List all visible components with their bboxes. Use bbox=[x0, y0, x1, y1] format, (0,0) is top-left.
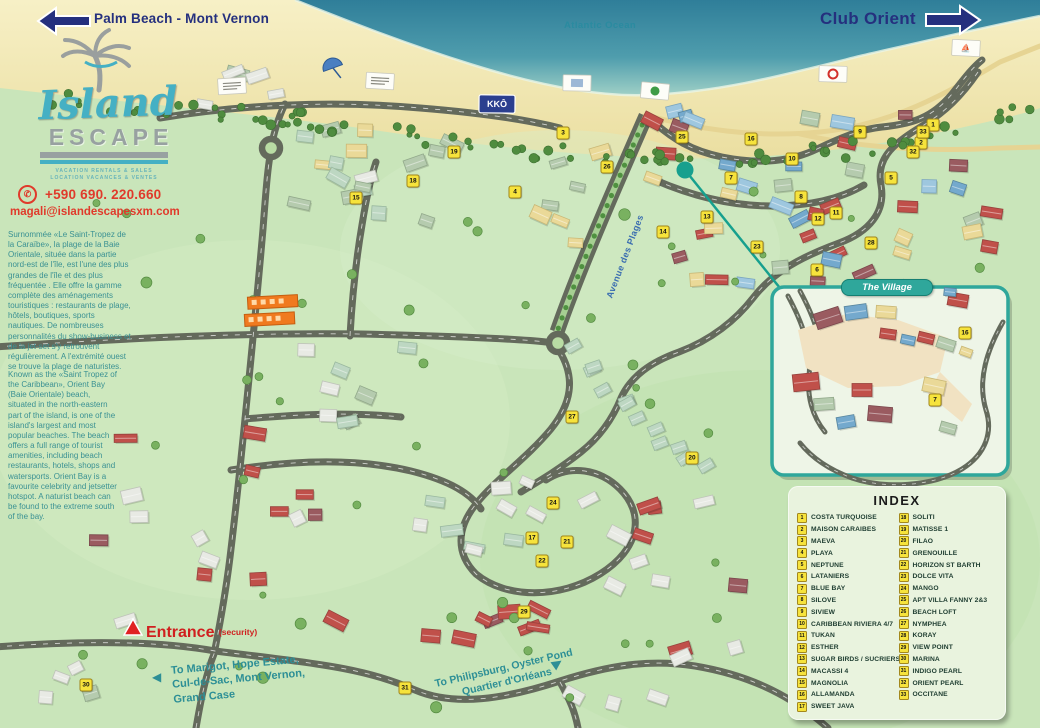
index-label: CARIBBEAN RIVIERA 4/7 bbox=[811, 621, 893, 628]
index-entry: 9SIVIEW bbox=[797, 606, 899, 618]
map-marker-27: 27 bbox=[566, 411, 579, 424]
index-label: INDIGO PEARL bbox=[913, 668, 963, 675]
index-number: 32 bbox=[899, 678, 909, 688]
index-entry: 11TUKAN bbox=[797, 630, 899, 642]
index-label: FILAO bbox=[913, 538, 934, 545]
index-number: 24 bbox=[899, 584, 909, 594]
map-marker-13: 13 bbox=[701, 211, 714, 224]
map-marker-6: 6 bbox=[811, 264, 824, 277]
index-entry: 33OCCITANE bbox=[899, 689, 1001, 701]
beach-sign-tree bbox=[640, 82, 669, 100]
index-number: 30 bbox=[899, 654, 909, 664]
index-entry: 21GRENOUILLE bbox=[899, 547, 1001, 559]
index-label: MAISON CARAIBES bbox=[811, 526, 876, 533]
index-entry: 10CARIBBEAN RIVIERA 4/7 bbox=[797, 618, 899, 630]
index-label: COSTA TURQUOISE bbox=[811, 514, 877, 521]
map-marker-32: 32 bbox=[907, 146, 920, 159]
roundabout-north bbox=[262, 139, 280, 157]
index-number: 8 bbox=[797, 595, 807, 605]
index-entry: 4PLAYA bbox=[797, 547, 899, 559]
index-entry: 18SOLITI bbox=[899, 512, 1001, 524]
logo-bar-gray bbox=[40, 152, 168, 158]
svg-text:⛵: ⛵ bbox=[961, 43, 971, 53]
index-entry: 23DOLCE VITA bbox=[899, 571, 1001, 583]
index-column-2: 18SOLITI19MATISSE 120FILAO21GRENOUILLE22… bbox=[899, 512, 1001, 713]
index-label: APT VILLA FANNY 2&3 bbox=[913, 597, 988, 604]
index-number: 12 bbox=[797, 643, 807, 653]
map-marker-4: 4 bbox=[509, 186, 522, 199]
index-label: SUGAR BIRDS / SUCRIERS bbox=[811, 656, 900, 663]
map-marker-29: 29 bbox=[518, 606, 531, 619]
map-marker-28: 28 bbox=[865, 237, 878, 250]
entrance-marker-icon bbox=[123, 618, 143, 636]
index-label: MANGO bbox=[913, 585, 939, 592]
index-columns: 1COSTA TURQUOISE2MAISON CARAIBES3MAEVA4P… bbox=[788, 512, 1006, 713]
resort-map: KKÔ⛵ Palm Beach - Mont Vernon Club Orien… bbox=[0, 0, 1040, 728]
beach-sign-menu bbox=[218, 77, 247, 95]
index-entry: 7BLUE BAY bbox=[797, 583, 899, 595]
phone-row: ✆ +590 690. 220.660 bbox=[18, 185, 161, 204]
index-entry: 32ORIENT PEARL bbox=[899, 677, 1001, 689]
intro-paragraph-english: Known as the «Saint Tropez of the Caribb… bbox=[8, 370, 120, 522]
index-label: SOLITI bbox=[913, 514, 935, 521]
index-label: MACASSI 4 bbox=[811, 668, 848, 675]
ocean-label: Atlantic Ocean bbox=[564, 20, 636, 31]
index-number: 22 bbox=[899, 560, 909, 570]
map-marker-10: 10 bbox=[786, 153, 799, 166]
map-marker-20: 20 bbox=[686, 452, 699, 465]
map-marker-7: 7 bbox=[929, 394, 942, 407]
index-number: 5 bbox=[797, 560, 807, 570]
intro-paragraph-french: Surnommée «Le Saint-Tropez de la Caraïbe… bbox=[8, 230, 132, 372]
index-number: 13 bbox=[797, 654, 807, 664]
map-marker-26: 26 bbox=[601, 161, 614, 174]
index-label: NYMPHEA bbox=[913, 621, 947, 628]
index-label: ORIENT PEARL bbox=[913, 680, 964, 687]
map-marker-21: 21 bbox=[561, 536, 574, 549]
map-marker-3: 3 bbox=[557, 127, 570, 140]
index-number: 16 bbox=[797, 690, 807, 700]
index-number: 3 bbox=[797, 536, 807, 546]
index-label: OCCITANE bbox=[913, 691, 948, 698]
index-entry: 24MANGO bbox=[899, 583, 1001, 595]
logo-bar-teal bbox=[40, 160, 168, 164]
index-number: 15 bbox=[797, 678, 807, 688]
map-marker-16: 16 bbox=[959, 327, 972, 340]
index-number: 29 bbox=[899, 643, 909, 653]
village-title: The Village bbox=[841, 279, 933, 296]
index-label: DOLCE VITA bbox=[913, 573, 954, 580]
marigot-arrow-icon: ◀ bbox=[152, 670, 161, 684]
index-entry: 28KORAY bbox=[899, 630, 1001, 642]
index-number: 9 bbox=[797, 607, 807, 617]
index-number: 14 bbox=[797, 666, 807, 676]
index-label: VIEW POINT bbox=[913, 644, 953, 651]
phone-icon: ✆ bbox=[18, 185, 37, 204]
email-address: magali@islandescapesxm.com bbox=[10, 206, 180, 218]
village-location-dot bbox=[677, 162, 694, 179]
index-label: SILOVE bbox=[811, 597, 836, 604]
brand-tagline-fr: LOCATION VACANCES & VENTES bbox=[38, 175, 170, 181]
beach-sign-red-1: ⛵ bbox=[952, 39, 981, 56]
entrance-label: Entrance (security) bbox=[146, 624, 257, 642]
index-entry: 25APT VILLA FANNY 2&3 bbox=[899, 595, 1001, 607]
brand-tagline-en: VACATION RENTALS & SALES bbox=[38, 168, 170, 174]
index-label: SWEET JAVA bbox=[811, 703, 854, 710]
index-label: BLUE BAY bbox=[811, 585, 845, 592]
index-entry: 29VIEW POINT bbox=[899, 642, 1001, 654]
index-label: MARINA bbox=[913, 656, 940, 663]
destination-club-orient: Club Orient bbox=[820, 9, 916, 29]
index-label: MAEVA bbox=[811, 538, 835, 545]
destination-palm-beach: Palm Beach - Mont Vernon bbox=[94, 11, 269, 26]
index-label: ALLAMANDA bbox=[811, 691, 855, 698]
index-label: KORAY bbox=[913, 632, 937, 639]
index-label: BEACH LOFT bbox=[913, 609, 957, 616]
map-marker-17: 17 bbox=[526, 532, 539, 545]
map-marker-12: 12 bbox=[812, 213, 825, 226]
index-number: 6 bbox=[797, 572, 807, 582]
index-entry: 8SILOVE bbox=[797, 595, 899, 607]
right-arrow-icon bbox=[924, 4, 982, 36]
index-number: 4 bbox=[797, 548, 807, 558]
entrance-security-note: (security) bbox=[219, 627, 257, 637]
index-label: NEPTUNE bbox=[811, 562, 844, 569]
beach-sign-menu bbox=[366, 72, 395, 90]
index-entry: 14MACASSI 4 bbox=[797, 665, 899, 677]
index-number: 28 bbox=[899, 631, 909, 641]
brand-name-caps: ESCAPE bbox=[36, 124, 186, 151]
map-marker-24: 24 bbox=[547, 497, 560, 510]
index-entry: 30MARINA bbox=[899, 654, 1001, 666]
index-entry: 22HORIZON ST BARTH bbox=[899, 559, 1001, 571]
beach-sign-red-dot bbox=[819, 66, 847, 83]
svg-text:KKÔ: KKÔ bbox=[487, 98, 507, 109]
index-entry: 12ESTHER bbox=[797, 642, 899, 654]
index-entry: 3MAEVA bbox=[797, 536, 899, 548]
index-number: 18 bbox=[899, 513, 909, 523]
index-label: GRENOUILLE bbox=[913, 550, 958, 557]
index-number: 17 bbox=[797, 702, 807, 712]
index-label: LATANIERS bbox=[811, 573, 849, 580]
beach-sign-plain bbox=[563, 75, 591, 92]
index-entry: 1COSTA TURQUOISE bbox=[797, 512, 899, 524]
map-marker-19: 19 bbox=[448, 146, 461, 159]
index-entry: 2MAISON CARAIBES bbox=[797, 524, 899, 536]
map-marker-7: 7 bbox=[725, 172, 738, 185]
index-entry: 20FILAO bbox=[899, 536, 1001, 548]
index-number: 11 bbox=[797, 631, 807, 641]
index-entry: 27NYMPHEA bbox=[899, 618, 1001, 630]
index-entry: 15MAGNOLIA bbox=[797, 677, 899, 689]
index-label: MAGNOLIA bbox=[811, 680, 848, 687]
index-panel: INDEX 1COSTA TURQUOISE2MAISON CARAIBES3M… bbox=[788, 486, 1006, 720]
index-number: 25 bbox=[899, 595, 909, 605]
index-entry: 13SUGAR BIRDS / SUCRIERS bbox=[797, 654, 899, 666]
index-label: ESTHER bbox=[811, 644, 839, 651]
brand-name-script: Island bbox=[27, 77, 189, 130]
index-number: 19 bbox=[899, 525, 909, 535]
map-marker-15: 15 bbox=[350, 192, 363, 205]
index-number: 7 bbox=[797, 584, 807, 594]
index-entry: 26BEACH LOFT bbox=[899, 606, 1001, 618]
index-number: 2 bbox=[797, 525, 807, 535]
index-label: HORIZON ST BARTH bbox=[913, 562, 981, 569]
index-number: 1 bbox=[797, 513, 807, 523]
village-inset bbox=[772, 287, 1012, 485]
phone-number: +590 690. 220.660 bbox=[45, 187, 161, 202]
map-marker-16: 16 bbox=[745, 133, 758, 146]
index-number: 21 bbox=[899, 548, 909, 558]
map-marker-9: 9 bbox=[854, 126, 867, 139]
index-entry: 19MATISSE 1 bbox=[899, 524, 1001, 536]
beach-sign-kko: KKÔ bbox=[479, 95, 515, 113]
index-entry: 6LATANIERS bbox=[797, 571, 899, 583]
map-marker-30: 30 bbox=[80, 679, 93, 692]
index-number: 10 bbox=[797, 619, 807, 629]
roundabout-south bbox=[549, 334, 567, 352]
entrance-text: Entrance bbox=[146, 624, 214, 641]
index-label: MATISSE 1 bbox=[913, 526, 949, 533]
index-number: 27 bbox=[899, 619, 909, 629]
index-number: 23 bbox=[899, 572, 909, 582]
map-marker-31: 31 bbox=[399, 682, 412, 695]
map-marker-33: 33 bbox=[917, 126, 930, 139]
index-column-1: 1COSTA TURQUOISE2MAISON CARAIBES3MAEVA4P… bbox=[797, 512, 899, 713]
index-title: INDEX bbox=[788, 493, 1006, 508]
index-label: PLAYA bbox=[811, 550, 833, 557]
index-label: TUKAN bbox=[811, 632, 835, 639]
index-entry: 31INDIGO PEARL bbox=[899, 665, 1001, 677]
index-number: 26 bbox=[899, 607, 909, 617]
index-number: 20 bbox=[899, 536, 909, 546]
index-entry: 17SWEET JAVA bbox=[797, 701, 899, 713]
map-marker-18: 18 bbox=[407, 175, 420, 188]
map-marker-14: 14 bbox=[657, 226, 670, 239]
map-marker-5: 5 bbox=[885, 172, 898, 185]
index-number: 33 bbox=[899, 690, 909, 700]
map-marker-11: 11 bbox=[830, 207, 843, 220]
index-entry: 5NEPTUNE bbox=[797, 559, 899, 571]
index-label: SIVIEW bbox=[811, 609, 835, 616]
map-marker-23: 23 bbox=[751, 241, 764, 254]
map-marker-22: 22 bbox=[536, 555, 549, 568]
map-marker-8: 8 bbox=[795, 191, 808, 204]
index-number: 31 bbox=[899, 666, 909, 676]
index-entry: 16ALLAMANDA bbox=[797, 689, 899, 701]
map-marker-25: 25 bbox=[676, 131, 689, 144]
